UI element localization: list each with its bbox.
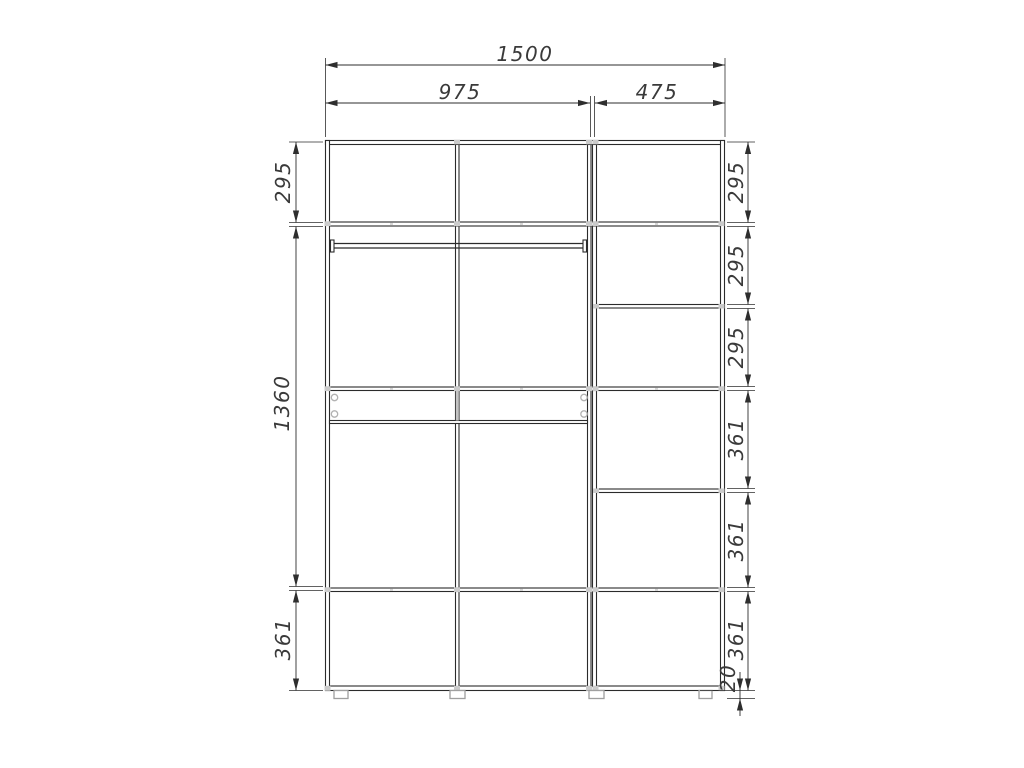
divider-behind-band bbox=[456, 391, 459, 421]
rod-bracket-left bbox=[331, 240, 335, 252]
foot-icon bbox=[334, 691, 348, 699]
fitting-icon bbox=[331, 411, 337, 417]
wardrobe-drawing: 1500 975 475 295 1360 361 bbox=[0, 0, 1024, 768]
middle-shelf-full bbox=[330, 387, 721, 391]
fitting-icon bbox=[581, 411, 587, 417]
top-panel bbox=[326, 141, 725, 145]
foot-icon bbox=[450, 691, 465, 699]
top-shelf bbox=[330, 222, 721, 226]
fitting-icon bbox=[331, 394, 337, 400]
dim-right-height-1: 295 bbox=[724, 161, 748, 204]
left-height-dimensions: 295 1360 361 bbox=[270, 142, 323, 691]
dim-left-height-bottom: 361 bbox=[271, 618, 295, 661]
bottom-panel bbox=[326, 686, 725, 691]
dim-total-width: 1500 bbox=[497, 42, 554, 66]
dim-right-height-3: 295 bbox=[724, 326, 748, 369]
dim-left-section-width: 975 bbox=[439, 80, 482, 104]
top-width-dimensions: 1500 975 475 bbox=[326, 42, 726, 137]
shelves bbox=[330, 222, 721, 592]
dim-right-height-5: 361 bbox=[724, 519, 748, 562]
dim-left-height-top: 295 bbox=[271, 161, 295, 204]
rod-bracket-right bbox=[583, 240, 587, 252]
adjustable-feet bbox=[334, 691, 712, 699]
dim-right-section-width: 475 bbox=[636, 80, 679, 104]
plinth-dimension: 20 bbox=[716, 664, 740, 716]
dim-right-height-2: 295 bbox=[724, 244, 748, 287]
left-band-shelf bbox=[330, 421, 588, 424]
right-shelf-4 bbox=[597, 489, 721, 493]
lower-shelf-full bbox=[330, 588, 721, 592]
drawing-canvas: 1500 975 475 295 1360 361 bbox=[0, 0, 1024, 768]
foot-icon bbox=[589, 691, 604, 699]
dim-plinth-height: 20 bbox=[716, 664, 740, 692]
dim-right-height-4: 361 bbox=[724, 418, 748, 461]
dim-left-height-middle: 1360 bbox=[270, 375, 294, 432]
dim-right-height-6: 361 bbox=[724, 618, 748, 661]
right-shelf-2 bbox=[597, 305, 721, 309]
fitting-icon bbox=[581, 394, 587, 400]
foot-icon bbox=[699, 691, 712, 699]
